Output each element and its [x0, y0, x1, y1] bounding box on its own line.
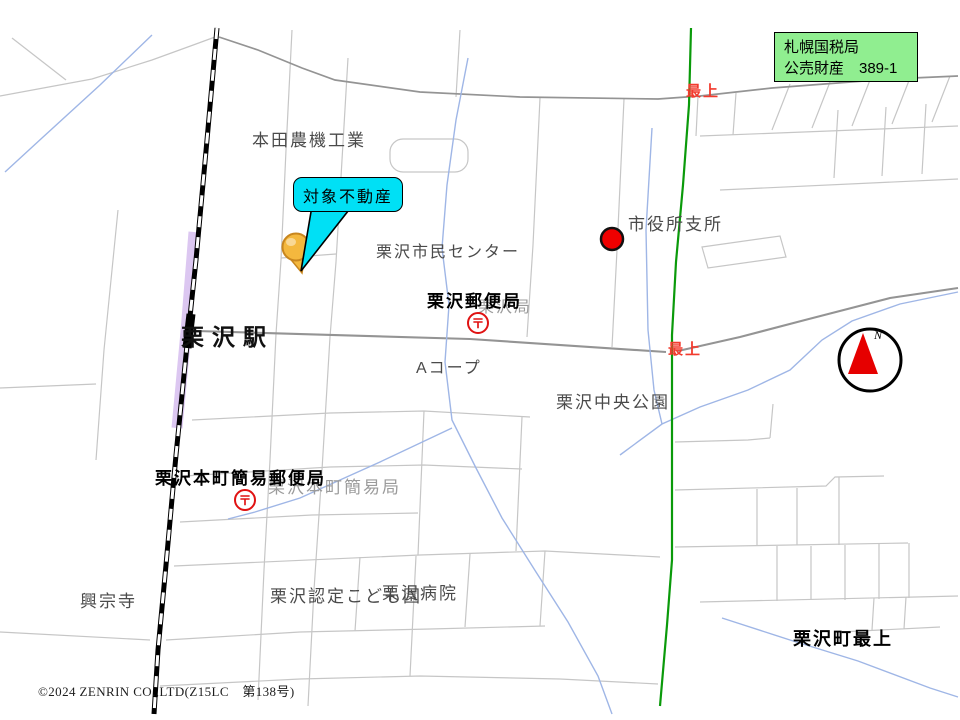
- station-marker: [187, 314, 191, 348]
- map-page: 本田農機工業栗沢市民センター市役所支所栗沢局栗沢郵便局栗沢駅Aコープ栗沢中央公園…: [0, 0, 960, 720]
- callout-text: 対象不動産: [303, 183, 393, 207]
- target-property-callout: 対象不動産: [293, 177, 403, 212]
- auction-annotation-box: 札幌国税局 公売財産 389-1: [774, 32, 918, 82]
- post-office-icon: 〒: [467, 312, 489, 334]
- city-office-marker: [601, 228, 623, 250]
- boundary-line: [660, 28, 691, 706]
- map-canvas: [0, 0, 960, 720]
- post-mark-glyph: 〒: [238, 494, 251, 507]
- annotation-property-no: 公売財産 389-1: [784, 58, 917, 79]
- annotation-office: 札幌国税局: [784, 37, 917, 58]
- minor-roads: [0, 30, 958, 706]
- copyright-text: ©2024 ZENRIN CO.,LTD(Z15LC 第138号): [38, 681, 295, 700]
- callout-tail: [301, 206, 352, 271]
- compass-icon: [836, 326, 904, 394]
- compass-north-letter: N: [874, 328, 882, 343]
- post-office-icon: 〒: [234, 489, 256, 511]
- post-mark-glyph: 〒: [471, 317, 484, 330]
- building-outline: [390, 139, 468, 172]
- streams: [5, 35, 958, 714]
- pin-highlight: [286, 238, 296, 246]
- compass: N: [836, 326, 904, 394]
